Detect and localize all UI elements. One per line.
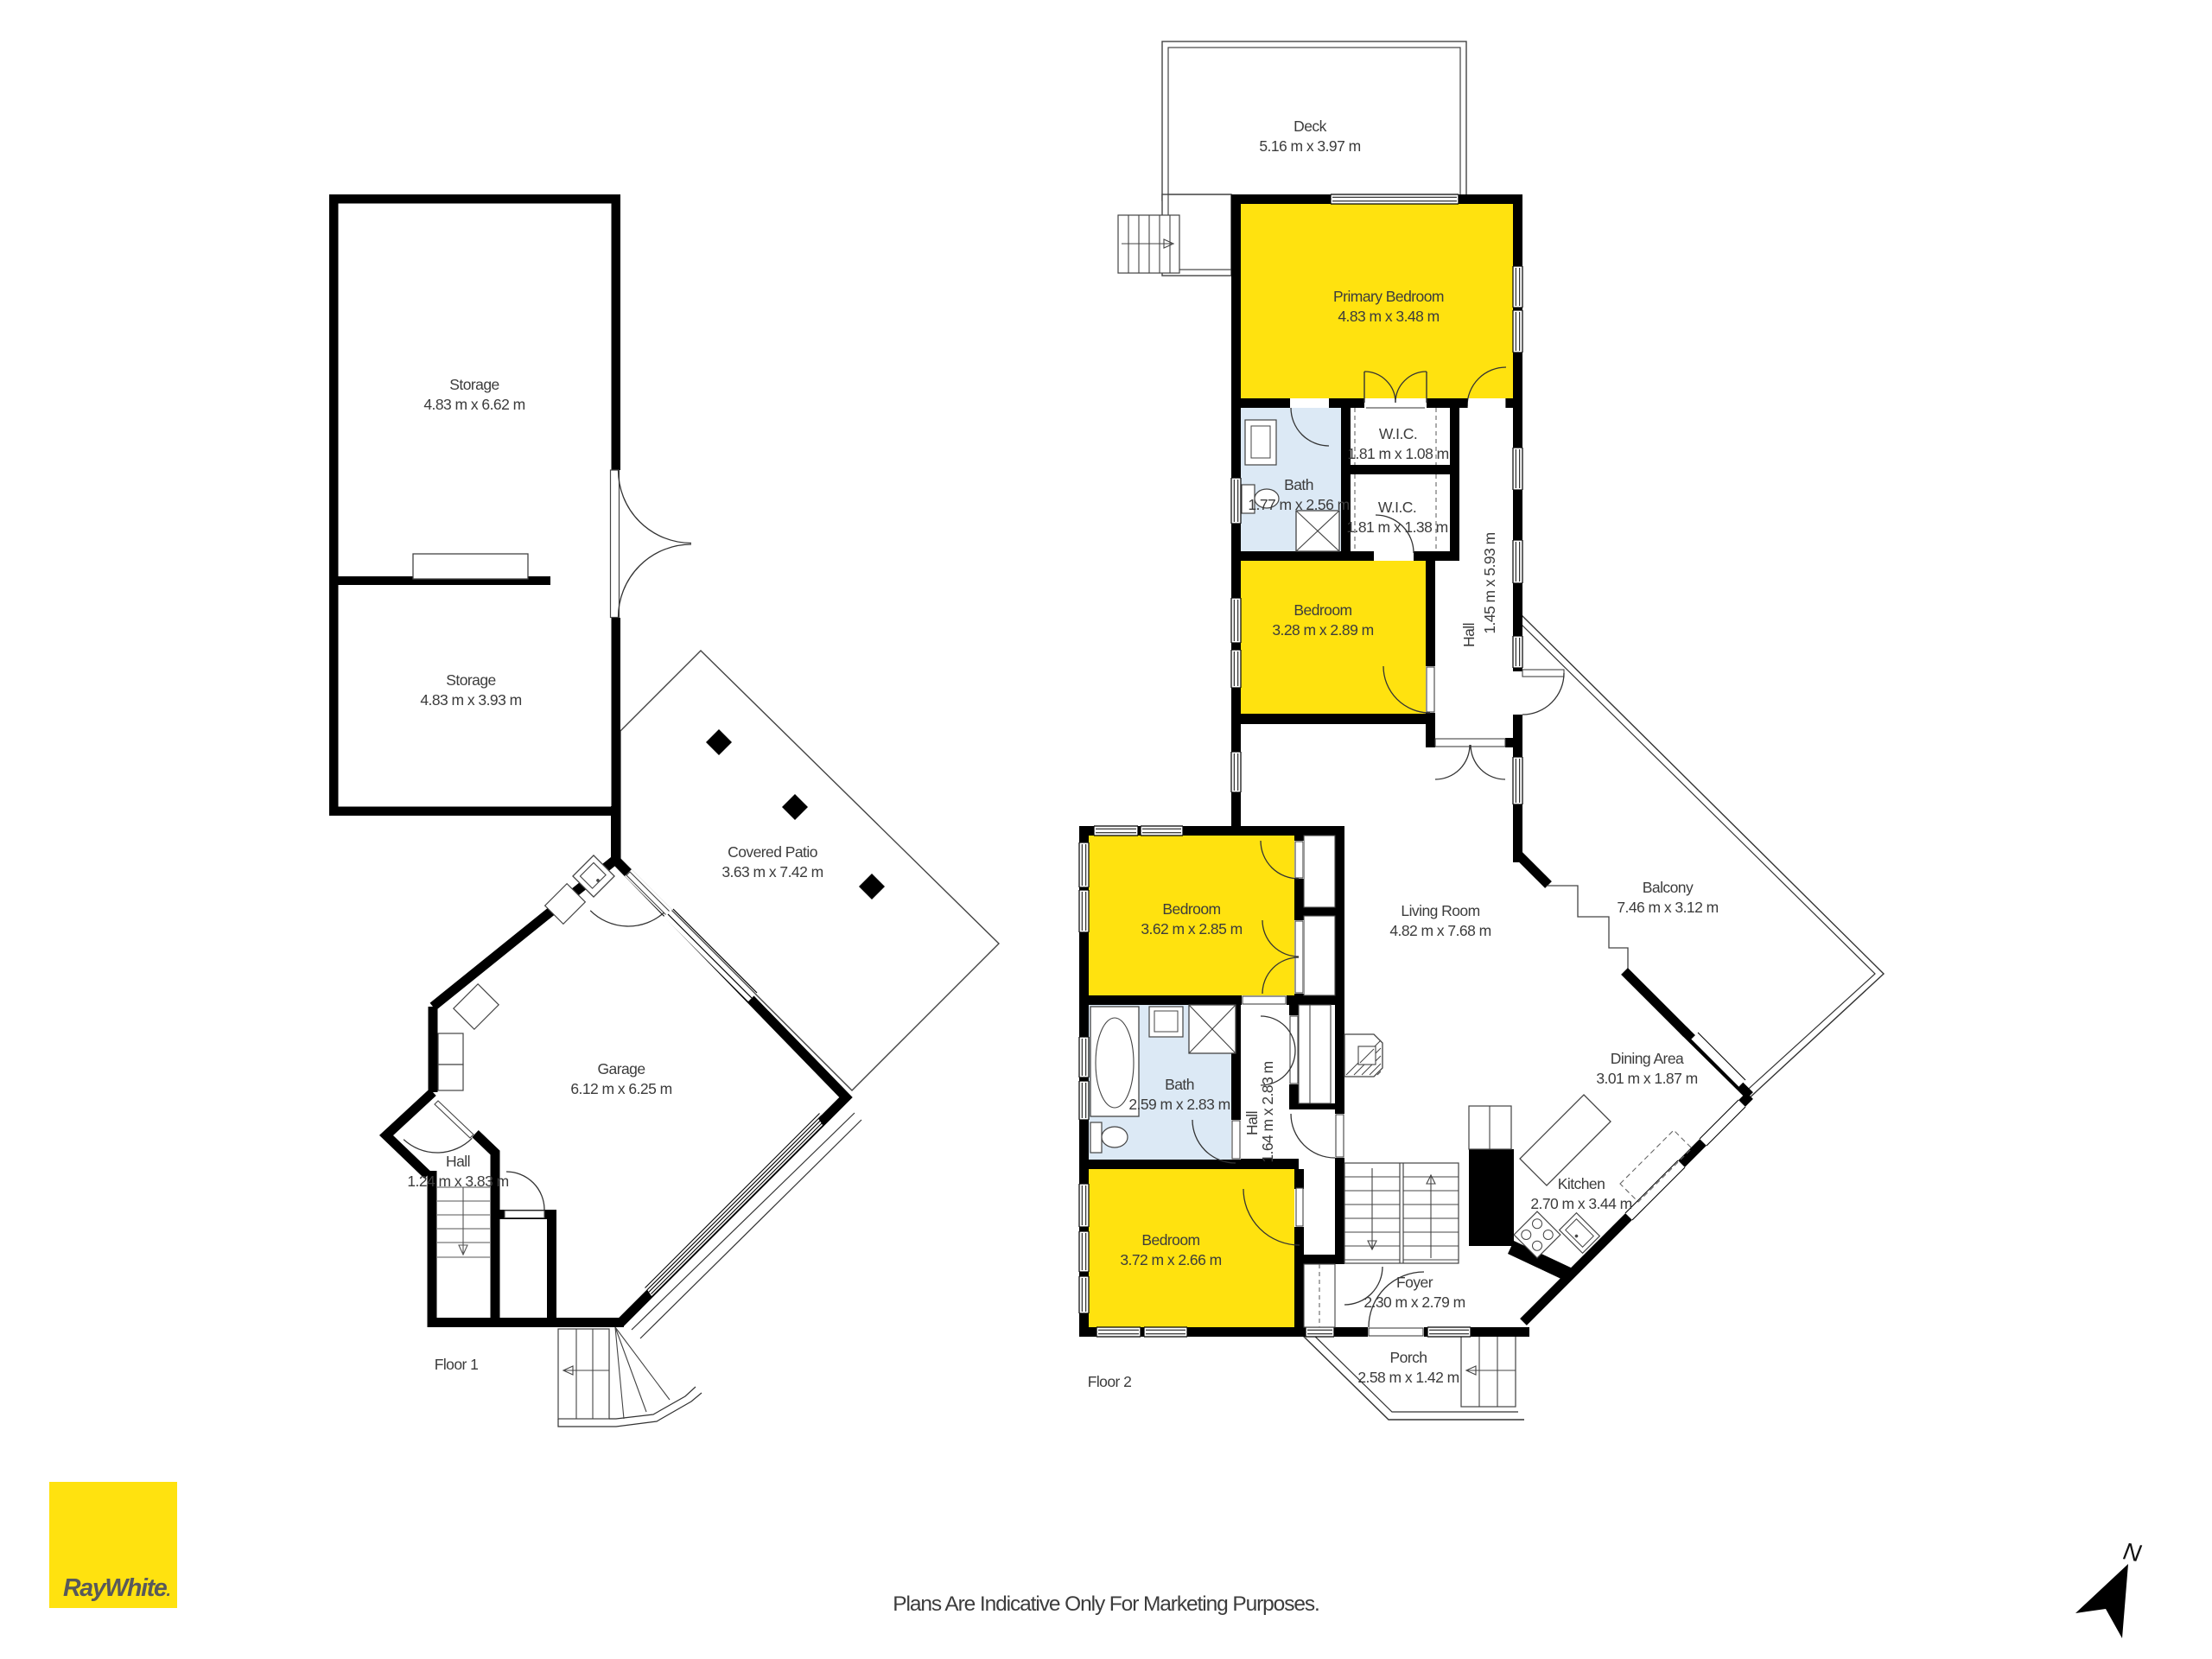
svg-text:4.83 m x 3.48 m: 4.83 m x 3.48 m — [1338, 308, 1439, 325]
svg-text:4.82 m x 7.68 m: 4.82 m x 7.68 m — [1389, 922, 1491, 939]
svg-text:Storage: Storage — [446, 671, 495, 689]
svg-text:Bedroom: Bedroom — [1162, 900, 1220, 918]
svg-text:Bedroom: Bedroom — [1141, 1231, 1199, 1249]
svg-text:Bath: Bath — [1165, 1076, 1194, 1093]
svg-text:Kitchen: Kitchen — [1558, 1175, 1605, 1192]
svg-text:1.24 m x 3.83 m: 1.24 m x 3.83 m — [407, 1173, 508, 1190]
svg-text:Bath: Bath — [1284, 476, 1313, 493]
svg-text:3.28 m x 2.89 m: 3.28 m x 2.89 m — [1272, 621, 1373, 639]
svg-text:Foyer: Foyer — [1396, 1274, 1433, 1291]
svg-text:Floor 1: Floor 1 — [435, 1356, 479, 1373]
svg-text:Plans Are Indicative Only For: Plans Are Indicative Only For Marketing … — [893, 1592, 1319, 1616]
svg-text:Garage: Garage — [597, 1060, 645, 1077]
svg-text:Hall: Hall — [1243, 1111, 1261, 1135]
svg-text:2.59 m x 2.83 m: 2.59 m x 2.83 m — [1128, 1096, 1230, 1113]
svg-text:1.81 m x 1.38 m: 1.81 m x 1.38 m — [1346, 518, 1447, 536]
svg-text:1.64 m x 2.83 m: 1.64 m x 2.83 m — [1259, 1061, 1276, 1162]
svg-text:2.70 m x 3.44 m: 2.70 m x 3.44 m — [1530, 1195, 1631, 1212]
svg-text:2.30 m x 2.79 m: 2.30 m x 2.79 m — [1363, 1294, 1465, 1311]
svg-text:RayWhite.: RayWhite. — [63, 1574, 169, 1602]
svg-text:Bedroom: Bedroom — [1294, 601, 1351, 619]
svg-text:Dining Area: Dining Area — [1611, 1050, 1684, 1067]
svg-text:3.01 m x 1.87 m: 3.01 m x 1.87 m — [1596, 1070, 1697, 1087]
svg-text:4.83 m x 3.93 m: 4.83 m x 3.93 m — [420, 691, 521, 709]
svg-text:Deck: Deck — [1294, 118, 1326, 135]
svg-text:3.62 m x 2.85 m: 3.62 m x 2.85 m — [1141, 920, 1242, 938]
svg-text:4.83 m x 6.62 m: 4.83 m x 6.62 m — [423, 396, 524, 413]
svg-text:1.77 m x 2.56 m: 1.77 m x 2.56 m — [1248, 496, 1349, 513]
svg-text:1.81 m x 1.08 m: 1.81 m x 1.08 m — [1347, 445, 1448, 462]
svg-text:W.I.C.: W.I.C. — [1378, 499, 1416, 516]
svg-text:Primary Bedroom: Primary Bedroom — [1333, 288, 1444, 305]
svg-text:Hall: Hall — [1460, 623, 1478, 647]
svg-text:6.12 m x 6.25 m: 6.12 m x 6.25 m — [570, 1080, 671, 1097]
svg-text:Porch: Porch — [1390, 1349, 1427, 1366]
svg-text:Covered Patio: Covered Patio — [728, 843, 817, 861]
svg-text:Hall: Hall — [446, 1153, 470, 1170]
svg-text:2.58 m x 1.42 m: 2.58 m x 1.42 m — [1357, 1369, 1459, 1386]
svg-text:Living Room: Living Room — [1401, 902, 1479, 919]
svg-text:7.46 m x 3.12 m: 7.46 m x 3.12 m — [1617, 899, 1718, 916]
svg-text:Floor 2: Floor 2 — [1088, 1373, 1132, 1390]
svg-text:1.45 m x 5.93 m: 1.45 m x 5.93 m — [1481, 532, 1498, 633]
svg-text:W.I.C.: W.I.C. — [1379, 425, 1417, 442]
svg-text:Storage: Storage — [449, 376, 499, 393]
svg-text:3.72 m x 2.66 m: 3.72 m x 2.66 m — [1120, 1251, 1221, 1268]
svg-text:5.16 m x 3.97 m: 5.16 m x 3.97 m — [1259, 137, 1360, 155]
svg-text:Balcony: Balcony — [1643, 879, 1694, 896]
svg-text:3.63 m x 7.42 m: 3.63 m x 7.42 m — [721, 863, 823, 880]
